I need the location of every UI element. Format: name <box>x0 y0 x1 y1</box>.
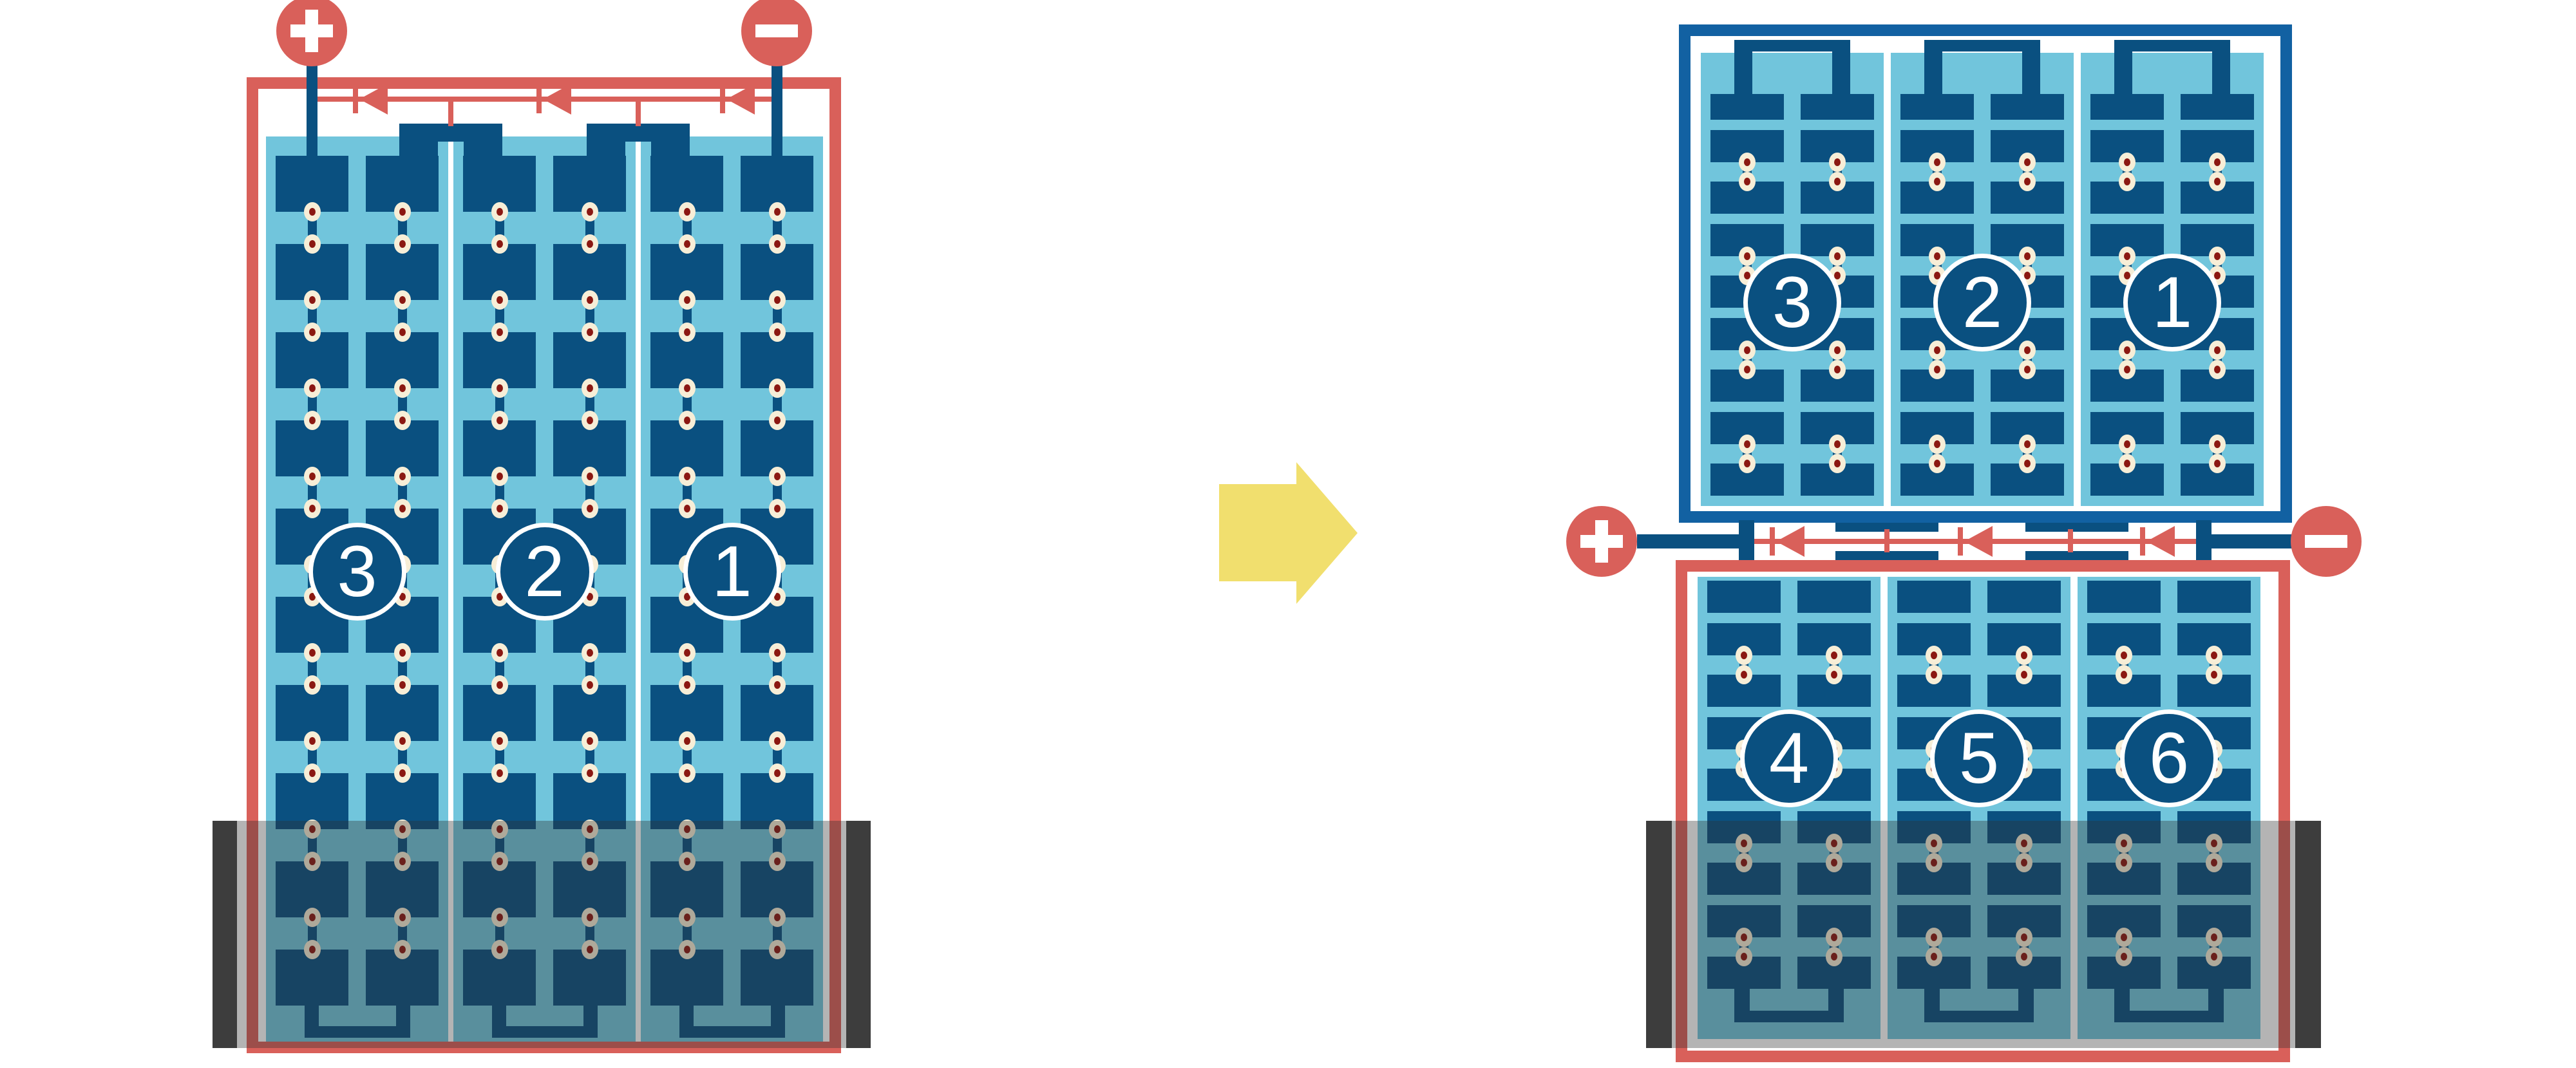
left-shade-edge-bar <box>846 821 871 1048</box>
right-shade-edge-bar <box>2295 821 2321 1048</box>
right-shade-overlay <box>1646 821 2321 1048</box>
left-shade-edge-bar <box>213 821 237 1048</box>
left-shade-overlay <box>213 821 871 1048</box>
shade-layer <box>0 0 2576 1068</box>
right-shade-edge-bar <box>1646 821 1672 1048</box>
diagram-canvas: 321321456 <box>0 0 2576 1068</box>
